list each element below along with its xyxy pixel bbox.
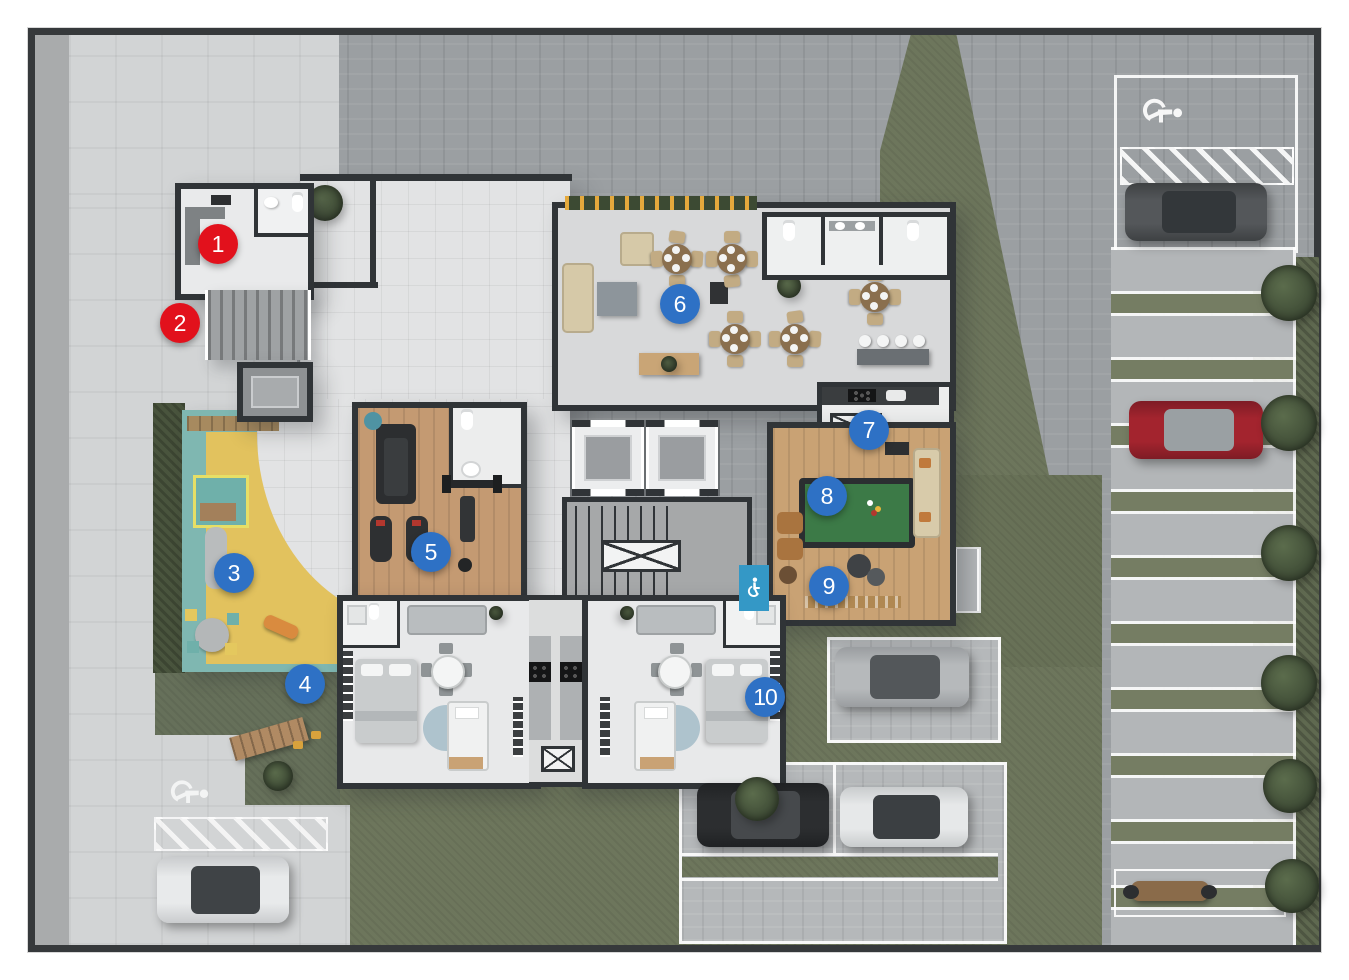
gameroom-sofa	[913, 448, 941, 538]
lounge-sofa	[562, 263, 594, 333]
sink-icon	[855, 222, 865, 230]
kids-table	[195, 618, 229, 652]
plan-marker-9: 9	[809, 566, 849, 606]
parking-pad-line-2	[682, 878, 998, 881]
service-shaft	[237, 362, 313, 422]
treadmill	[376, 424, 416, 504]
apartment-bathroom	[343, 601, 400, 648]
car-red	[1129, 401, 1263, 459]
floor-plan-canvas: 1 2 3 4 5 6 7 8 9 10	[28, 28, 1321, 952]
plan-marker-2: 2	[160, 303, 200, 343]
wheelchair-icon	[169, 771, 211, 813]
armchair	[777, 512, 803, 534]
dumbwaiter	[541, 746, 575, 772]
bar-stool	[913, 335, 925, 347]
tv-cabinet	[885, 442, 909, 455]
lobby-wall-segment	[370, 180, 376, 288]
wardrobe	[600, 697, 610, 757]
service-shaft-car	[251, 376, 299, 408]
living-sofa	[407, 605, 487, 635]
wardrobe	[513, 697, 523, 757]
toilet-icon	[461, 412, 473, 430]
kitchen-corridor	[529, 595, 582, 787]
parking-pad-divider	[833, 765, 836, 853]
lounge-coffee-table	[597, 282, 637, 316]
kids-seat	[187, 641, 199, 653]
table-plant	[661, 356, 677, 372]
dining-table	[431, 655, 465, 689]
stair-landing	[601, 540, 681, 572]
living-sofa	[636, 605, 716, 635]
plan-marker-4: 4	[285, 664, 325, 704]
entrance-ramp	[205, 290, 311, 360]
plan-marker-3: 3	[214, 553, 254, 593]
elevator-cab	[584, 435, 632, 481]
dining-table-4	[704, 231, 760, 287]
plan-marker-5: 5	[411, 532, 451, 572]
single-bed	[447, 701, 489, 771]
kitchen-counter	[560, 636, 582, 740]
hedge-playground-west	[153, 403, 185, 673]
tree	[1265, 859, 1319, 913]
kitchen-counter	[822, 387, 939, 405]
car-suv-dark	[1125, 183, 1267, 241]
apartment-unit-left	[337, 595, 541, 789]
garden-toy	[293, 741, 303, 749]
parking-pad-green-strip	[682, 857, 998, 877]
accessible-hatch-zone-south	[154, 817, 328, 851]
toilet-icon	[369, 605, 379, 620]
exercise-ball	[364, 412, 382, 430]
page: { "plan": { "type": "residential-ground-…	[0, 0, 1349, 980]
car-silver	[835, 647, 969, 707]
dumbbell	[458, 558, 472, 572]
sink-icon	[264, 197, 278, 208]
barbell-rack	[444, 480, 500, 488]
playhouse	[193, 475, 249, 528]
kids-seat	[225, 643, 237, 655]
dining-chair	[670, 643, 684, 654]
kitchen-counter	[529, 636, 551, 740]
office-monitor	[211, 195, 231, 205]
office-desk-return	[185, 207, 225, 219]
single-bed	[634, 701, 676, 771]
stove-icon	[848, 389, 876, 402]
elevator-cab	[658, 435, 706, 481]
accessible-hatch-zone	[1120, 147, 1294, 185]
marker-number: 4	[299, 673, 312, 696]
game-room	[767, 422, 956, 626]
lounge-long-table	[639, 353, 699, 375]
marker-number: 5	[425, 541, 438, 564]
tree	[1261, 265, 1317, 321]
shower-icon	[347, 605, 367, 625]
marker-number: 8	[821, 485, 834, 508]
planter-lounge-north	[565, 196, 757, 210]
garden-toy	[311, 731, 321, 739]
office	[175, 183, 314, 300]
marker-number: 6	[674, 293, 687, 316]
plan-marker-7: 7	[849, 410, 889, 450]
toilet-icon	[907, 223, 919, 241]
living-plant	[489, 606, 503, 620]
kids-seat	[185, 609, 197, 621]
sink-icon	[886, 390, 906, 401]
marker-number: 7	[863, 419, 876, 442]
marker-number: 2	[174, 312, 187, 335]
dining-table-4	[767, 311, 823, 367]
tree	[1261, 395, 1317, 451]
restrooms	[762, 212, 952, 280]
dining-table-4	[707, 311, 763, 367]
round-table	[867, 568, 885, 586]
toilet-icon	[783, 223, 795, 241]
sink-icon	[461, 461, 481, 478]
stove-icon	[560, 662, 582, 682]
living-plant	[620, 606, 634, 620]
dining-table-4	[649, 231, 705, 287]
side-table	[779, 566, 797, 584]
bar-stool	[877, 335, 889, 347]
plan-marker-1: 1	[198, 224, 238, 264]
shrub	[263, 761, 293, 791]
marker-number: 10	[753, 686, 777, 709]
toilet-icon	[292, 195, 303, 212]
tree	[735, 777, 779, 821]
tree	[1261, 525, 1317, 581]
plan-marker-10: 10	[745, 677, 785, 717]
curb-strip	[35, 35, 69, 945]
restroom-divider	[879, 217, 883, 265]
sink-icon	[835, 222, 845, 230]
tree	[1263, 759, 1317, 813]
parking-stalls-east	[1111, 247, 1296, 945]
bar-stool	[895, 335, 907, 347]
entry-driveway	[69, 35, 339, 195]
plan-marker-8: 8	[807, 476, 847, 516]
lobby-wall-top	[300, 174, 572, 181]
plan-marker-6: 6	[660, 284, 700, 324]
weight-bench	[460, 496, 475, 542]
wheelchair-icon	[1141, 89, 1185, 133]
elevator-shaft	[646, 422, 718, 494]
dining-chair	[439, 643, 453, 654]
accessible-route-sign	[739, 565, 769, 611]
playhouse-deck	[200, 503, 236, 521]
lounge-bar-counter	[857, 349, 929, 365]
double-bed	[355, 659, 417, 743]
tree	[1261, 655, 1317, 711]
restroom-divider	[821, 217, 825, 265]
office-bathroom	[254, 189, 308, 237]
dining-chair	[691, 663, 702, 677]
elevator-shaft	[572, 422, 644, 494]
marker-number: 3	[228, 562, 241, 585]
bar-stool	[859, 335, 871, 347]
marker-number: 9	[823, 575, 836, 598]
gym-bathroom	[449, 408, 521, 488]
car-white-street	[157, 857, 289, 923]
wardrobe	[343, 651, 353, 721]
marker-number: 1	[212, 233, 225, 256]
parking-pad-line	[682, 853, 998, 856]
stove-icon	[529, 662, 551, 682]
car-white	[840, 787, 968, 847]
dining-table	[658, 655, 692, 689]
exercise-bike	[370, 516, 392, 562]
armchair	[777, 538, 803, 560]
kids-seat	[227, 613, 239, 625]
wheelchair-icon	[743, 576, 765, 598]
motorcycle	[1131, 881, 1209, 901]
